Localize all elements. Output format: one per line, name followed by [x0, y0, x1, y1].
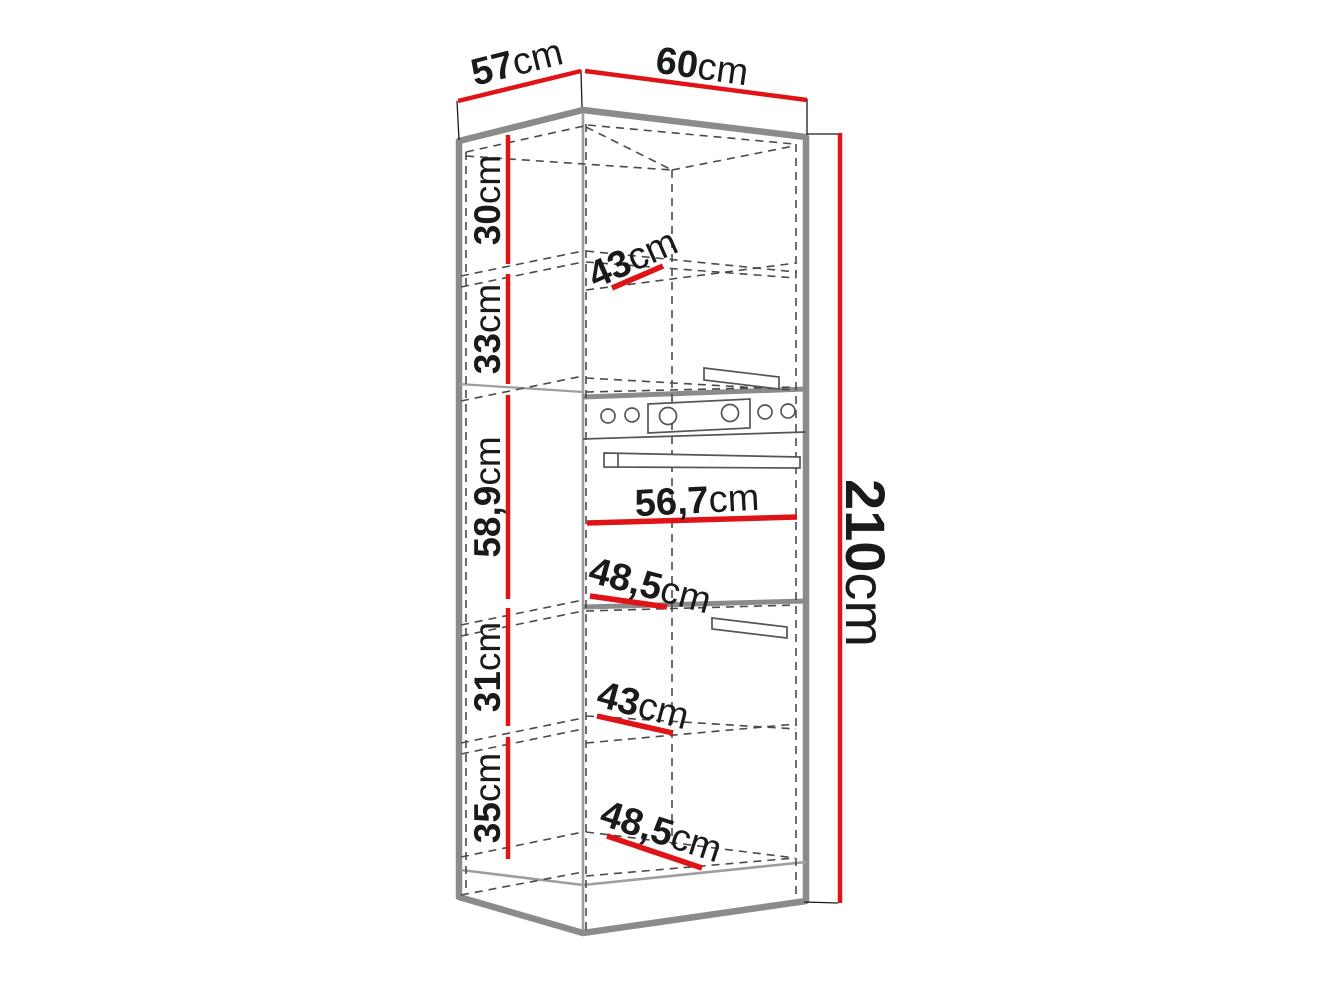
section-height-label-31: 31cm: [467, 622, 508, 712]
interior-width-label-56-7: 56,7cm: [634, 477, 761, 525]
cabinet-dimension-diagram: 57cm 60cm 210cm 30cm 33cm 58,9cm 31cm 35…: [0, 0, 1322, 991]
section-height-label-58-9: 58,9cm: [467, 436, 508, 557]
section-height-label-33: 33cm: [467, 284, 508, 374]
section-height-label-30: 30cm: [467, 155, 508, 245]
oven-knob: [781, 404, 795, 418]
oven-knob: [625, 408, 639, 422]
dim-width-label: 60cm: [653, 40, 751, 95]
oven-dial: [660, 408, 677, 425]
dim-height-label: 210cm: [835, 479, 898, 647]
section-height-label-35: 35cm: [467, 753, 508, 843]
oven-knob: [601, 409, 615, 423]
oven-dial: [722, 405, 739, 422]
oven-knob: [758, 405, 772, 419]
diagram-canvas: 57cm 60cm 210cm 30cm 33cm 58,9cm 31cm 35…: [0, 0, 1322, 991]
